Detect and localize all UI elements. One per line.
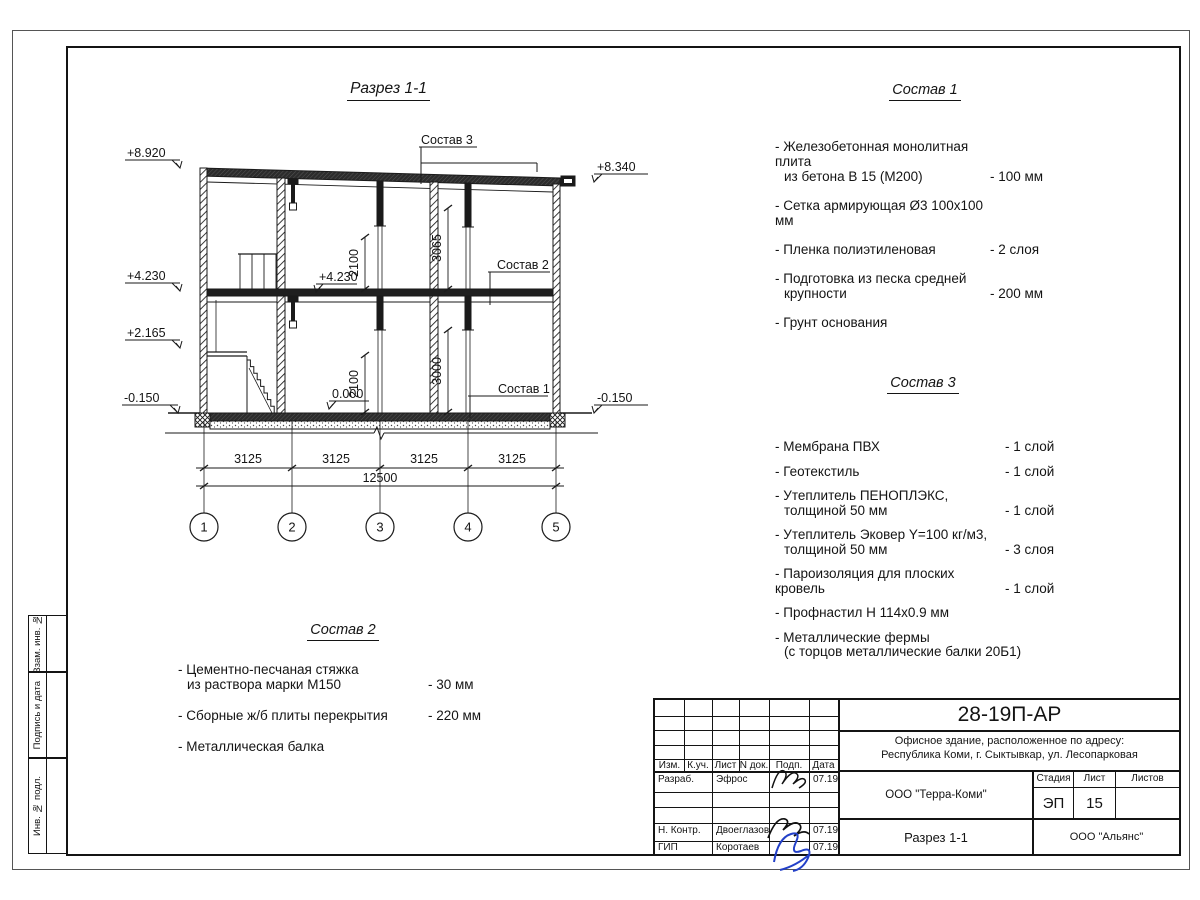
item-name: - Металлическая балка — [178, 739, 428, 754]
item-name2: из бетона В 15 (М200) — [775, 169, 990, 184]
stamp-zam-inv-label: Взам. инв. № — [29, 616, 47, 672]
object-line2: Республика Коми, г. Сыктывкар, ул. Лесоп… — [840, 748, 1179, 762]
list-item: - Сетка армирующая Ø3 100х100 мм — [775, 198, 1167, 228]
item-name: - Пароизоляция для плоских кровель — [775, 567, 1005, 596]
item-value: - 100 мм — [990, 169, 1043, 184]
drawing-title: Разрез 1-1 — [316, 80, 461, 101]
stamp-inv-podl-label: Инв. № подл. — [29, 758, 47, 853]
list-item: - Профнастил Н 114х0.9 мм — [775, 606, 1167, 621]
item-name: - Сетка армирующая Ø3 100х100 мм — [775, 198, 990, 228]
item-value: - 3 слоя — [1005, 543, 1054, 558]
stamp-podpis-data-label: Подпись и дата — [29, 672, 47, 758]
item-name: - Пленка полиэтиленовая — [775, 242, 990, 257]
item-name: - Подготовка из песка средней — [775, 271, 990, 286]
row-razrab-date: 07.19 — [810, 774, 841, 790]
item-value: - 2 слоя — [990, 242, 1039, 257]
item-name: - Сборные ж/б плиты перекрытия — [178, 708, 428, 723]
list-item: - Металлические фермы(с торцов металличе… — [775, 631, 1167, 660]
list-item: - Металлическая балка — [178, 739, 508, 754]
item-name: - Грунт основания — [775, 315, 990, 330]
item-value: - 1 слой — [1005, 582, 1054, 597]
col-ndok: N док. — [739, 759, 769, 771]
col-izm: Изм. — [655, 759, 684, 771]
item-value: - 1 слой — [1005, 440, 1054, 455]
list-item: - Пленка полиэтиленовая - 2 слоя — [775, 242, 1167, 257]
list-item: - Подготовка из песка среднейкрупности -… — [775, 271, 1167, 301]
row-nkontr-date: 07.19 — [810, 825, 841, 840]
sheets-label: Листов — [1116, 770, 1179, 787]
stamp-podpis-data: Подпись и дата — [28, 671, 68, 759]
item-value: - 1 слой — [1005, 465, 1054, 480]
list-item: - Цементно-песчаная стяжкаиз раствора ма… — [178, 662, 508, 692]
col-list: Лист — [712, 759, 739, 771]
sheet-value: 15 — [1074, 788, 1115, 818]
list-item: - Сборные ж/б плиты перекрытия - 220 мм — [178, 708, 508, 723]
row-razrab-role: Разраб. — [655, 774, 715, 790]
sheet-label: Лист — [1074, 770, 1115, 787]
item-name: - Металлические фермы — [775, 631, 1095, 646]
stamp-zam-inv: Взам. инв. № — [28, 615, 68, 673]
col-data: Дата — [809, 759, 838, 771]
item-name: - Утеплитель Эковер Y=100 кг/м3, — [775, 528, 1005, 543]
row-nkontr-name: Двоеглазов — [713, 825, 772, 840]
list-item: - Грунт основания — [775, 315, 1167, 330]
item-name2: (с торцов металлические балки 20Б1) — [775, 645, 1095, 660]
list-item: - Пароизоляция для плоских кровель - 1 с… — [775, 567, 1167, 596]
item-value: - 200 мм — [990, 286, 1043, 301]
org-name: ООО "Терра-Коми" — [840, 772, 1032, 818]
sostav1-list: - Железобетонная монолитная плитаиз бето… — [775, 139, 1167, 344]
sheets-value — [1116, 788, 1179, 818]
col-kuch: К.уч. — [684, 759, 712, 771]
item-value: - 1 слой — [1005, 504, 1054, 519]
item-name: - Железобетонная монолитная плита — [775, 139, 990, 169]
list-item: - Геотекстиль - 1 слой — [775, 465, 1167, 480]
sostav3-title: Состав 3 — [853, 375, 993, 394]
stamp-inv-podl: Инв. № подл. — [28, 757, 68, 854]
row-gip-date: 07.19 — [810, 842, 841, 854]
col-podp: Подп. — [769, 759, 809, 771]
object-line1: Офисное здание, расположенное по адресу: — [840, 734, 1179, 748]
item-value: - 30 мм — [428, 677, 474, 692]
list-item: - Утеплитель Эковер Y=100 кг/м3,толщиной… — [775, 528, 1167, 557]
item-name: - Мембрана ПВХ — [775, 440, 1005, 455]
sostav2-list: - Цементно-песчаная стяжкаиз раствора ма… — [178, 662, 508, 770]
stage-value: ЭП — [1034, 788, 1073, 818]
item-value: - 220 мм — [428, 708, 481, 723]
item-name: - Профнастил Н 114х0.9 мм — [775, 606, 1005, 621]
list-item: - Мембрана ПВХ - 1 слой — [775, 440, 1167, 455]
item-name2: крупности — [775, 286, 990, 301]
item-name2: толщиной 50 мм — [775, 504, 1005, 519]
doc-number: 28-19П-АР — [840, 700, 1179, 730]
item-name: - Цементно-песчаная стяжка — [178, 662, 428, 677]
item-name: - Утеплитель ПЕНОПЛЭКС, — [775, 489, 1005, 504]
item-name2: из раствора марки М150 — [178, 677, 428, 692]
sostav2-title: Состав 2 — [283, 622, 403, 641]
item-name2: толщиной 50 мм — [775, 543, 1005, 558]
contractor-name: ООО "Альянс" — [1034, 820, 1179, 854]
object-description: Офисное здание, расположенное по адресу:… — [840, 734, 1179, 762]
sostav3-list: - Мембрана ПВХ - 1 слой - Геотекстиль - … — [775, 440, 1167, 670]
row-gip-name: Коротаев — [713, 842, 772, 854]
drawing-name-cell: Разрез 1-1 — [840, 820, 1032, 854]
item-name: - Геотекстиль — [775, 465, 1005, 480]
row-nkontr-role: Н. Контр. — [655, 825, 715, 840]
title-block: Изм. К.уч. Лист N док. Подп. Дата Разраб… — [653, 698, 1181, 856]
list-item: - Утеплитель ПЕНОПЛЭКС,толщиной 50 мм - … — [775, 489, 1167, 518]
stage-label: Стадия — [1034, 770, 1073, 787]
row-razrab-name: Эфрос — [713, 774, 772, 790]
list-item: - Железобетонная монолитная плитаиз бето… — [775, 139, 1167, 184]
row-gip-role: ГИП — [655, 842, 715, 854]
sostav1-title: Состав 1 — [855, 82, 995, 101]
